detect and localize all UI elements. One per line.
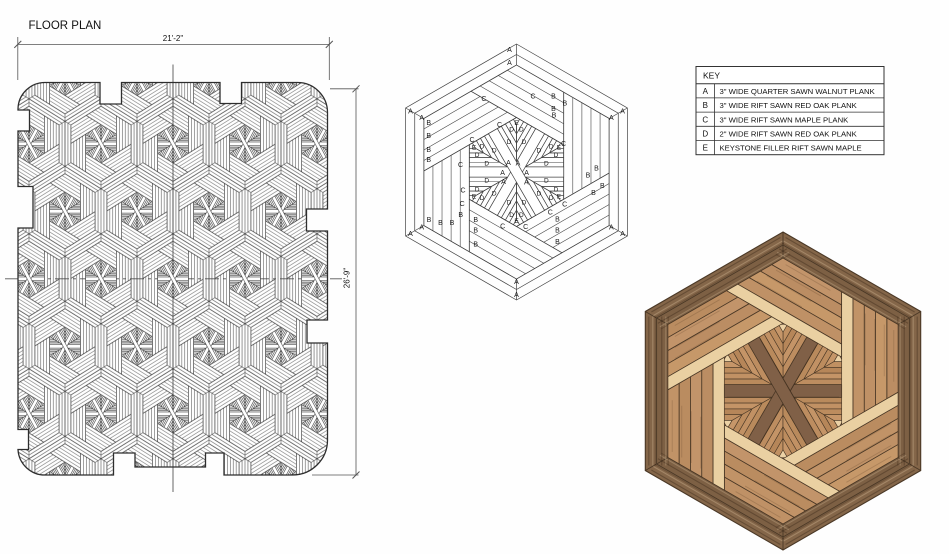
svg-text:D: D (475, 152, 480, 159)
svg-text:2" WIDE RIFT SAWN RED OAK PLAN: 2" WIDE RIFT SAWN RED OAK PLANK (720, 130, 858, 139)
svg-text:B: B (586, 172, 591, 179)
svg-text:E: E (472, 145, 477, 152)
svg-text:A: A (506, 160, 511, 167)
svg-text:E: E (514, 120, 519, 127)
svg-text:D: D (549, 195, 554, 202)
svg-text:B: B (555, 239, 560, 246)
svg-text:21'-2": 21'-2" (163, 34, 184, 43)
svg-text:C: C (561, 141, 566, 148)
svg-text:3" WIDE QUARTER SAWN WALNUT PL: 3" WIDE QUARTER SAWN WALNUT PLANK (720, 87, 876, 96)
svg-text:C: C (460, 201, 465, 208)
svg-text:A: A (501, 179, 506, 186)
svg-text:A: A (609, 224, 614, 231)
svg-text:E: E (557, 194, 562, 201)
svg-text:B: B (591, 190, 596, 197)
svg-text:B: B (555, 216, 560, 223)
svg-text:B: B (450, 220, 455, 227)
svg-text:D: D (522, 139, 527, 146)
svg-text:A: A (408, 231, 413, 238)
svg-text:A: A (524, 170, 529, 177)
svg-text:D: D (507, 199, 512, 206)
svg-text:E: E (703, 144, 708, 153)
svg-text:D: D (475, 186, 480, 193)
svg-text:E: E (557, 145, 562, 152)
svg-text:D: D (549, 144, 554, 151)
svg-text:D: D (702, 130, 708, 139)
svg-text:B: B (426, 133, 431, 140)
svg-text:FLOOR PLAN: FLOOR PLAN (29, 20, 102, 32)
svg-text:D: D (509, 126, 514, 133)
svg-text:D: D (492, 191, 497, 198)
svg-text:B: B (426, 147, 431, 154)
svg-text:B: B (600, 183, 605, 190)
svg-text:D: D (484, 161, 489, 168)
svg-text:B: B (594, 166, 599, 173)
svg-text:C: C (460, 187, 465, 194)
svg-text:C: C (702, 115, 708, 124)
svg-text:B: B (562, 100, 567, 107)
svg-text:D: D (480, 195, 485, 202)
svg-text:A: A (507, 47, 512, 54)
svg-text:C: C (497, 122, 502, 129)
svg-text:A: A (524, 180, 529, 187)
svg-text:B: B (552, 112, 557, 119)
svg-text:B: B (458, 212, 463, 219)
svg-text:D: D (554, 186, 559, 193)
svg-text:E: E (472, 194, 477, 201)
svg-text:A: A (514, 292, 519, 299)
svg-text:C: C (562, 201, 567, 208)
svg-text:C: C (481, 96, 486, 103)
svg-text:C: C (469, 137, 474, 144)
svg-text:D: D (536, 148, 541, 155)
svg-text:D: D (544, 161, 549, 168)
svg-text:B: B (473, 242, 478, 249)
svg-text:C: C (530, 94, 535, 101)
svg-text:D: D (480, 144, 485, 151)
svg-text:A: A (419, 224, 424, 231)
svg-text:C: C (548, 210, 553, 217)
svg-text:D: D (536, 191, 541, 198)
svg-text:B: B (438, 220, 443, 227)
svg-text:C: C (500, 223, 505, 230)
svg-text:B: B (555, 227, 560, 234)
svg-text:D: D (484, 178, 489, 185)
svg-text:KEYSTONE FILLER RIFT SAWN MAPL: KEYSTONE FILLER RIFT SAWN MAPLE (720, 144, 862, 153)
svg-text:D: D (544, 178, 549, 185)
svg-text:C: C (523, 224, 528, 231)
svg-text:B: B (426, 157, 431, 164)
svg-text:B: B (473, 217, 478, 224)
svg-text:C: C (458, 162, 463, 169)
svg-text:D: D (507, 139, 512, 146)
svg-text:A: A (703, 87, 709, 96)
svg-text:A: A (514, 279, 519, 286)
svg-text:26'-9": 26'-9" (343, 268, 352, 289)
svg-text:3" WIDE RIFT SAWN RED OAK PLAN: 3" WIDE RIFT SAWN RED OAK PLANK (720, 101, 858, 110)
svg-text:E: E (514, 218, 519, 225)
svg-text:D: D (519, 126, 524, 133)
svg-text:3" WIDE RIFT SAWN MAPLE PLANK: 3" WIDE RIFT SAWN MAPLE PLANK (720, 115, 850, 124)
svg-text:A: A (408, 108, 413, 115)
svg-text:D: D (492, 148, 497, 155)
svg-text:A: A (507, 60, 512, 67)
svg-text:D: D (519, 212, 524, 219)
svg-text:A: A (500, 170, 505, 177)
svg-text:B: B (473, 227, 478, 234)
svg-text:D: D (522, 199, 527, 206)
svg-text:A: A (419, 115, 424, 122)
svg-text:D: D (554, 152, 559, 159)
svg-text:A: A (620, 231, 625, 238)
svg-text:A: A (516, 161, 521, 168)
svg-text:A: A (620, 108, 625, 115)
svg-text:KEY: KEY (703, 71, 720, 81)
svg-text:B: B (551, 94, 556, 101)
svg-text:B: B (426, 120, 431, 127)
svg-text:A: A (609, 115, 614, 122)
svg-text:B: B (427, 217, 432, 224)
svg-text:B: B (703, 101, 708, 110)
